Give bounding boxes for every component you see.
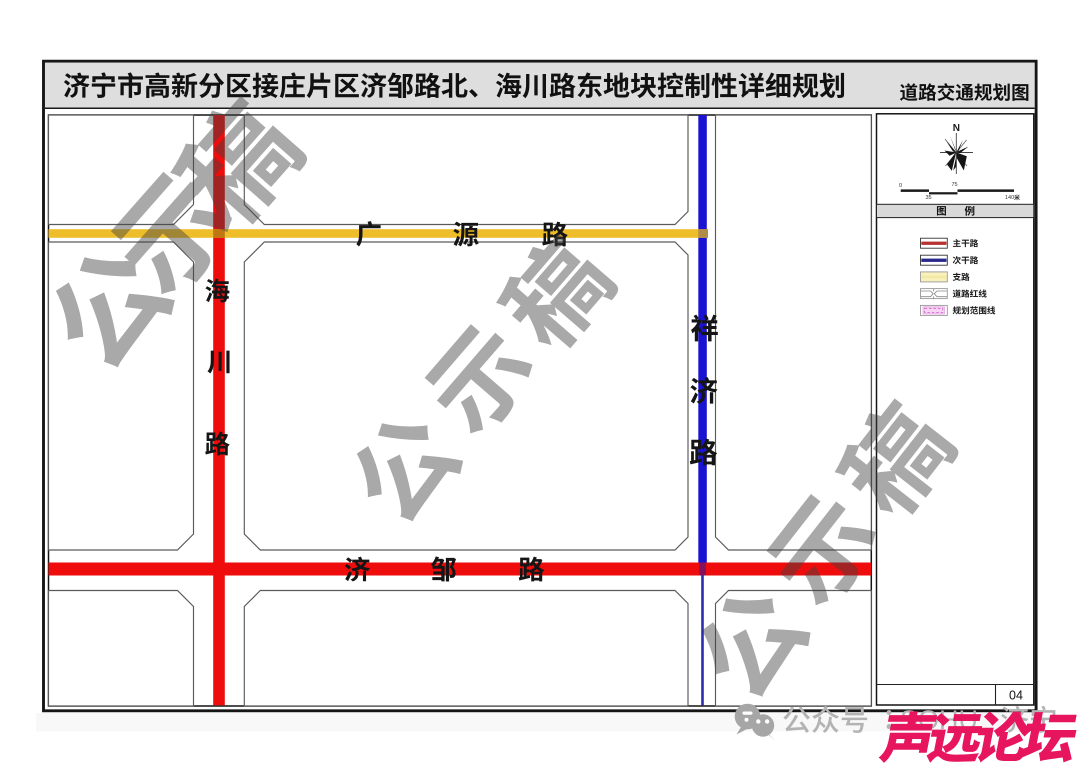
svg-text:0: 0 [899, 183, 902, 189]
svg-text:35: 35 [925, 195, 931, 201]
svg-text:75: 75 [951, 182, 957, 188]
svg-text:04: 04 [1009, 689, 1023, 703]
svg-text:140: 140 [1005, 195, 1014, 201]
svg-text:N: N [953, 123, 960, 134]
